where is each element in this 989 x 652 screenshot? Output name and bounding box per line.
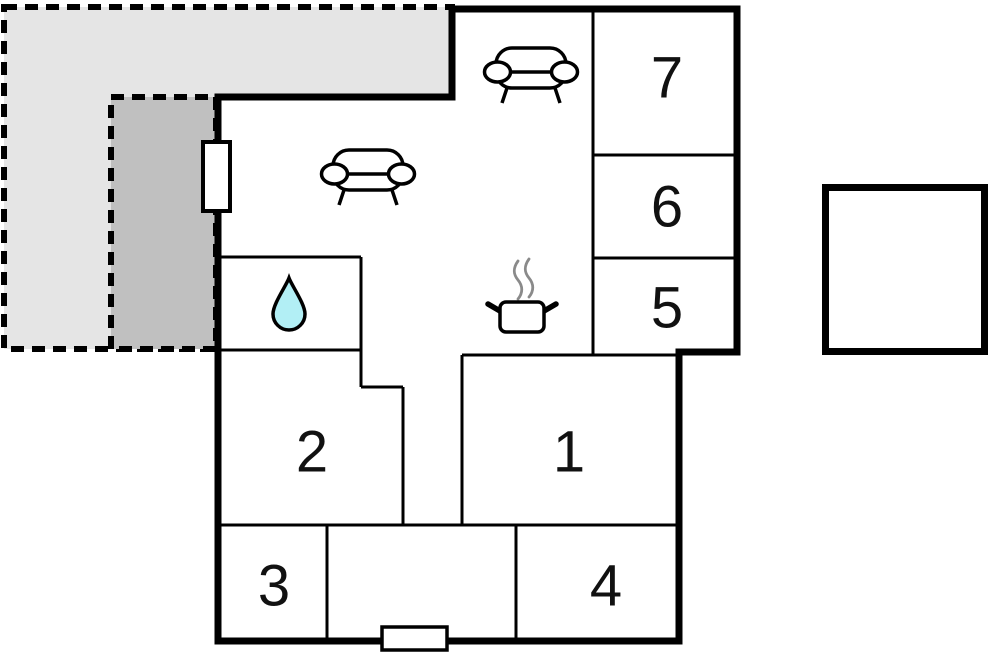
room-label-1: 1 [553, 420, 585, 485]
terrace-dark-area [111, 97, 216, 349]
room-label-4: 4 [590, 554, 622, 619]
room-label-3: 3 [258, 554, 290, 619]
floor-plan: 1 2 3 4 5 6 7 [0, 0, 989, 652]
floor-plan-svg: 1 2 3 4 5 6 7 [0, 0, 989, 652]
pot-body [500, 302, 544, 332]
room-label-7: 7 [651, 46, 683, 111]
window-marker [203, 142, 230, 211]
room-label-2: 2 [296, 420, 328, 485]
room-label-5: 5 [651, 276, 683, 341]
room-label-6: 6 [651, 175, 683, 240]
detached-square-building [826, 188, 985, 352]
entrance-door-marker [382, 627, 447, 650]
